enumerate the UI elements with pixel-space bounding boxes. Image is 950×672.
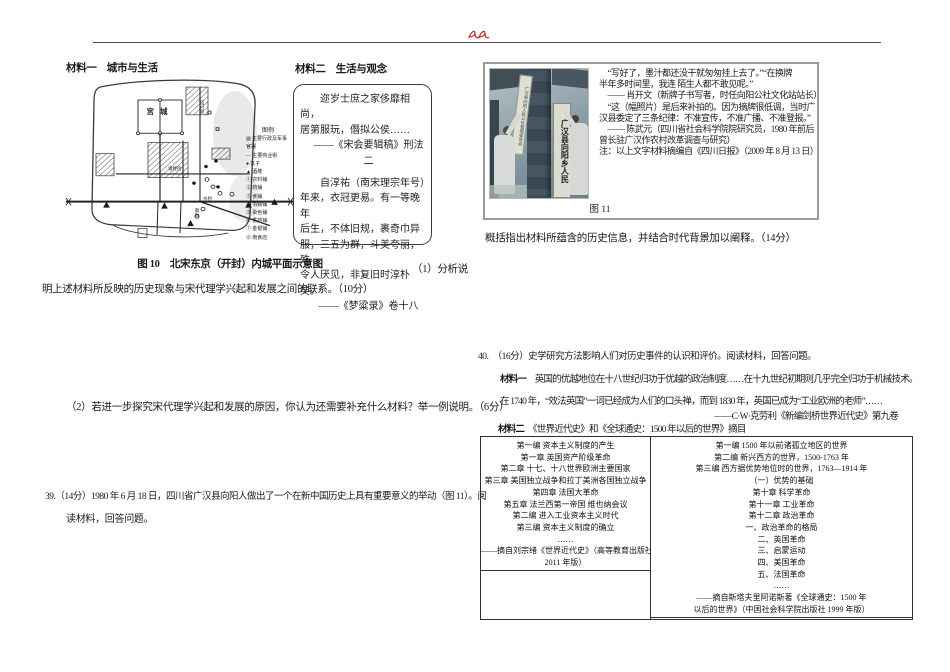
text-line: “写好了，墨汁都还没干就匆匆挂上去了。”“在换牌 bbox=[599, 68, 813, 79]
material1-label: 材料一 bbox=[500, 375, 526, 385]
text-line: 曾长驻广汉作农村改革调查与研究） bbox=[599, 135, 813, 146]
text-line: 第五章 法兰西第一帝国 维也纳会议 bbox=[481, 499, 650, 511]
material1-paragraph-line1: 材料一 英国的优越地位在十八世纪归功于优越的政治制度……在十九世纪初期则几乎完全… bbox=[500, 371, 918, 385]
text-line: …… bbox=[481, 534, 650, 546]
text-line: 三、启蒙运动 bbox=[651, 545, 912, 557]
text-line: ① 衣料铺 bbox=[246, 177, 290, 185]
map-legend-title: 图例 bbox=[246, 127, 290, 135]
watermark-logo-icon bbox=[466, 29, 490, 41]
question1-wrap: 明上述材料所反映的历史现象与宋代理学兴起和发展之间的联系。（10分） bbox=[42, 281, 373, 296]
material2-title-text: 《世界近代史》和《全球通史：1500 年以后的世界》摘目 bbox=[524, 425, 745, 435]
text-line: 第二章 十七、十八世界欧洲主要国家 bbox=[481, 463, 650, 475]
text-line: 后生，不体旧规，裹奇巾异 bbox=[300, 222, 425, 237]
header-divider bbox=[93, 42, 881, 43]
question40-text: 40. （16分）史学研究方法影响人们对历史事件的认识和评价。阅读材料，回答问题… bbox=[478, 348, 816, 362]
material2-title-line: 材料二 《世界近代史》和《全球通史：1500 年以后的世界》摘目 bbox=[498, 421, 746, 435]
text-line: 二、英国革命 bbox=[651, 534, 912, 546]
material1-paragraph-line2: 在 1740 年，“效法英国”一词已经成为人们的口头禅，而到 1830 年，英国… bbox=[500, 393, 882, 407]
text-line: 第三章 美国独立战争和拉丁美洲各国独立战争 bbox=[481, 475, 650, 487]
material1-attribution: ——C·W·克劳利《新编剑桥世界近代史》第九卷 bbox=[500, 408, 898, 422]
map-street-label-mahangjie: 马行街 bbox=[199, 100, 205, 114]
figure11-photo: 广汉县向阳人民公社管理委员会 广汉县向阳乡人民 bbox=[489, 68, 589, 199]
text-line: 第三编 资本主义制度的确立 bbox=[481, 522, 650, 534]
text-line: ② 药铺 bbox=[246, 185, 290, 193]
material1-heading: 材料一 城市与生活 bbox=[66, 60, 158, 75]
material2-heading: 材料二 生活与观念 bbox=[295, 61, 387, 76]
text-line: 第一章 英国资产阶级革命 bbox=[481, 452, 650, 464]
text-line: 2011 年版） bbox=[481, 557, 650, 571]
text-line: —— 肖开文（新牌子书写者，时任向阳公社文化站站长） bbox=[599, 90, 813, 101]
text-line: 第十章 科学革命 bbox=[651, 487, 912, 499]
text-line: 第二编 进入工业资本主义时代 bbox=[481, 510, 650, 522]
question39-line1: 39.（14分）1980 年 6 月 18 日，四川省广汉县向阳人做出了一个在新… bbox=[45, 488, 486, 502]
map-legend: 图例 ▨ 主要行政及军事官署— 主要商业街● 瓦子▲ 酒楼① 衣料铺② 药铺③ … bbox=[246, 127, 290, 243]
text-line: 汉县委定了三条纪律：不准宣传，不准广播、不准登报。” bbox=[599, 113, 813, 124]
figure11-material-box: 广汉县向阳人民公社管理委员会 广汉县向阳乡人民 图 11 “写好了，墨汁都还没干… bbox=[483, 62, 819, 220]
text-line: ▨ 主要行政及军事官署 bbox=[246, 136, 290, 152]
text-line: 一、政治革命的格局 bbox=[651, 522, 912, 534]
text-line: 第二编 新兴西方的世界，1500-1763 年 bbox=[651, 452, 912, 464]
text-line: 第一编 资本主义制度的产生 bbox=[481, 440, 650, 452]
text-line: 年来，衣冠更易。有一等晚年 bbox=[300, 191, 425, 222]
question2-text: （2）若进一步探究宋代理学兴起和发展的原因，你认为还需要补充什么材料？举一例说明… bbox=[66, 399, 509, 414]
text-line: ——《梦粱录》卷十八 bbox=[300, 299, 425, 314]
text-line: ——摘自斯塔夫里阿诺斯著《全球通史：1500 年 bbox=[651, 592, 912, 604]
map-legend-items: ▨ 主要行政及军事官署— 主要商业街● 瓦子▲ 酒楼① 衣料铺② 药铺③ 食铺④… bbox=[246, 136, 290, 243]
text-line: …… bbox=[651, 580, 912, 592]
text-line: ④ 书籍铺 bbox=[246, 202, 290, 210]
text-line: 以后的世界》（中国社会科学院出版社 1999 年版） bbox=[651, 604, 912, 618]
text-line: ⑧ 南食店 bbox=[246, 235, 290, 243]
text-line: ——摘自刘宗绪《世界近代史》（高等教育出版社 bbox=[481, 545, 650, 557]
text-line: ▲ 酒楼 bbox=[246, 169, 290, 177]
text-line: 第十二章 政治革命 bbox=[651, 510, 912, 522]
material1-line1-text: 英国的优越地位在十八世纪归功于优越的政治制度……在十九世纪初期则几乎完全归功于机… bbox=[526, 375, 918, 385]
figure10-caption: 图 10 北宋东京（开封）内城平面示意图 bbox=[70, 256, 390, 271]
toc-comparison-table: 第一编 资本主义制度的产生第一章 英国资产阶级革命第二章 十七、十八世界欧洲主要… bbox=[480, 436, 913, 620]
question1-lead: （1）分析说 bbox=[412, 261, 468, 276]
text-line: “这（幅照片）是后来补拍的。因为摘牌很低调，当时广 bbox=[599, 102, 813, 113]
material2-label: 材料二 bbox=[498, 425, 524, 435]
text-line: 居第服玩，僭拟公侯…… bbox=[300, 123, 425, 138]
map-street-label-zhouqiao: 州桥 bbox=[203, 196, 212, 202]
text-line: 注：以上文字材料摘编自《四川日报》（2009 年 8 月 13 日） bbox=[599, 146, 813, 157]
text-line: 第一编 1500 年以前诸孤立地区的世界 bbox=[651, 440, 912, 452]
map-street-label-yujie: 御街 bbox=[194, 208, 200, 217]
toc-table-left-column: 第一编 资本主义制度的产生第一章 英国资产阶级革命第二章 十七、十八世界欧洲主要… bbox=[481, 437, 651, 619]
figure11-quote-text: “写好了，墨汁都还没干就匆匆挂上去了。”“在换牌半年多时间里，我连 陌生人都不敢… bbox=[599, 68, 813, 158]
question39-line2: 读材料，回答问题。 bbox=[66, 510, 153, 525]
map-palace-label: 宫城 bbox=[138, 106, 182, 117]
text-line: — 主要商业街 bbox=[246, 153, 290, 161]
photo-blue-tint bbox=[490, 69, 588, 198]
text-line: （一）优势的基础 bbox=[651, 475, 912, 487]
text-line: 四、美国革命 bbox=[651, 557, 912, 569]
text-line: ③ 食铺 bbox=[246, 194, 290, 202]
text-line: ——《宋会要辑稿》刑法二 bbox=[300, 138, 425, 169]
map-street-label-panloujie: 潘楼街 bbox=[168, 166, 182, 172]
question39-task: 概括指出材料所蕴含的历史信息，并结合时代背景加以阐释。（14分） bbox=[485, 230, 796, 245]
text-line: 迩岁士庶之家侈靡相尚， bbox=[300, 92, 425, 123]
toc-table-right-column: 第一编 1500 年以前诸孤立地区的世界第二编 新兴西方的世界，1500-176… bbox=[651, 437, 912, 619]
text-line: —— 陈武元（四川省社会科学院院研究员，1980 年前后 bbox=[599, 124, 813, 135]
figure11-caption: 图 11 bbox=[570, 201, 630, 215]
text-line: 半年多时间里，我连 陌生人都不敢见呢。” bbox=[599, 79, 813, 90]
text-line: ⑥ 香药铺 bbox=[246, 218, 290, 226]
text-line: 自淳祐（南宋理宗年号） bbox=[300, 176, 425, 191]
text-line: ⑤ 染色铺 bbox=[246, 210, 290, 218]
exam-page: 材料一 城市与生活 材料二 生活与观念 bbox=[0, 0, 950, 672]
text-line: 第十一章 工业革命 bbox=[651, 499, 912, 511]
material2-quote-panel: 迩岁士庶之家侈靡相尚，居第服玩，僭拟公侯……——《宋会要辑稿》刑法二自淳祐（南宋… bbox=[293, 84, 432, 245]
text-line: 第四章 法国大革命 bbox=[481, 487, 650, 499]
text-line: 五、法国革命 bbox=[651, 569, 912, 581]
text-line: ⑦ 金银铺 bbox=[246, 226, 290, 234]
text-line: 第三编 西方据优势地位时的世界，1763—1914 年 bbox=[651, 463, 912, 475]
text-line: ● 瓦子 bbox=[246, 161, 290, 169]
